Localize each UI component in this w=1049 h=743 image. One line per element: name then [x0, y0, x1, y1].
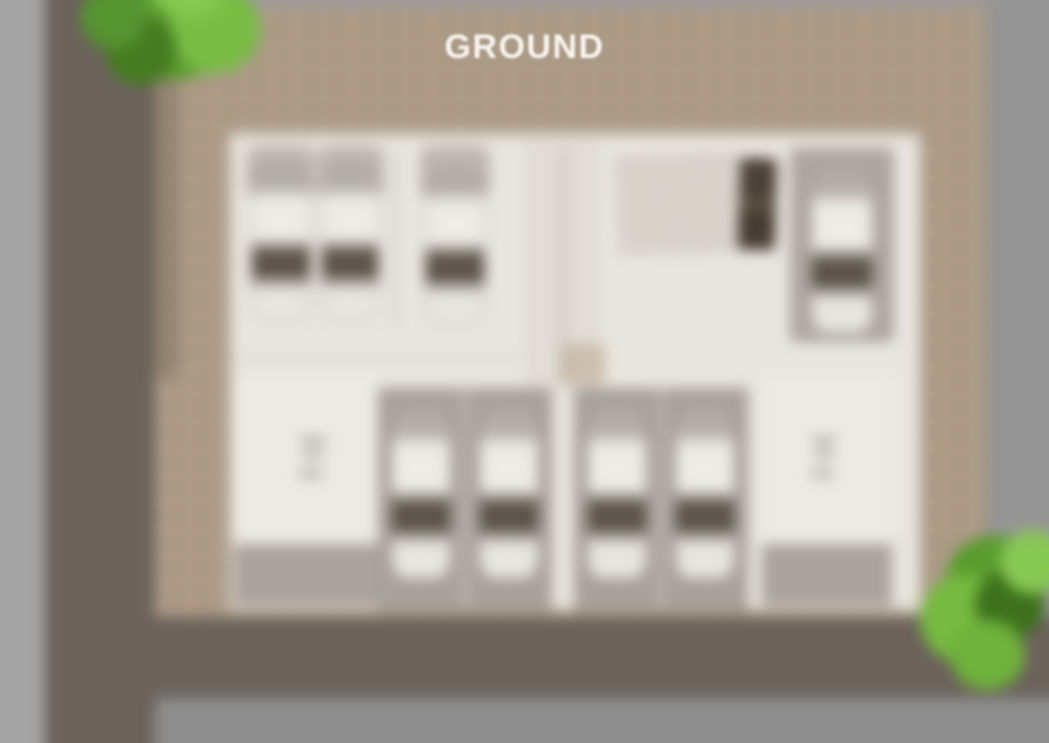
floor-marking	[302, 452, 324, 459]
car-topdown	[812, 168, 872, 332]
car-topdown	[588, 408, 646, 578]
parking-divider-line	[394, 150, 397, 328]
empty-parking-room	[762, 376, 892, 606]
empty-parking-room	[234, 376, 378, 606]
floor-marking	[300, 437, 326, 445]
car-topdown	[480, 408, 538, 578]
sidewalk-left	[0, 0, 50, 743]
utility-cabinet	[738, 158, 777, 251]
floor-marking	[811, 470, 833, 478]
car-topdown	[392, 408, 450, 578]
floor-grate	[616, 150, 745, 254]
floor-plan-screenshot: GROUND	[0, 0, 1049, 743]
building-shadow	[152, 50, 180, 380]
sidewalk-right	[986, 0, 1049, 625]
page-title: GROUND	[0, 28, 1049, 67]
road-left	[45, 0, 155, 743]
car-topdown	[252, 164, 310, 320]
floor-marking	[814, 452, 834, 459]
car-topdown	[322, 164, 378, 320]
corridor-wall-line	[234, 356, 520, 359]
car-topdown	[676, 408, 734, 578]
floor-marking	[299, 470, 323, 478]
road-bottom	[148, 617, 1049, 700]
sidewalk-bottom	[148, 698, 1049, 743]
blurred-site-plan	[0, 0, 1049, 743]
floor-marking	[812, 437, 836, 445]
car-topdown	[426, 168, 484, 324]
top-edge-band	[232, 0, 1049, 8]
stair-landing	[560, 344, 606, 384]
